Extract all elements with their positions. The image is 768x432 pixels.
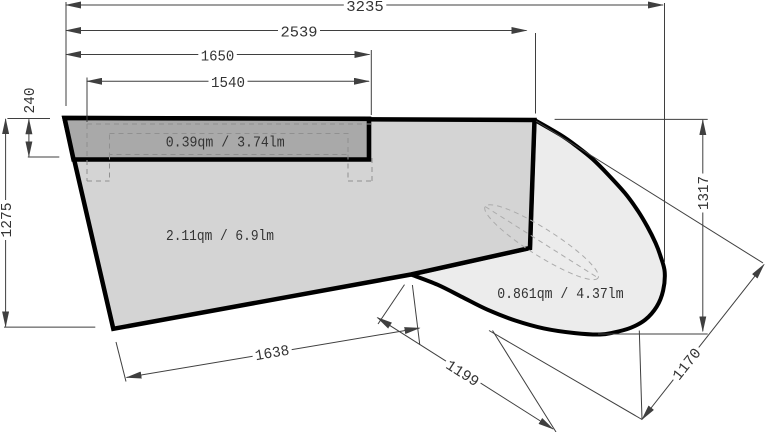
svg-text:0.39qm / 3.74lm: 0.39qm / 3.74lm [166, 134, 285, 151]
svg-text:1317: 1317 [696, 176, 713, 210]
svg-text:240: 240 [22, 88, 39, 114]
svg-text:1650: 1650 [201, 48, 235, 65]
svg-text:1540: 1540 [211, 75, 245, 92]
svg-text:0.861qm / 4.37lm: 0.861qm / 4.37lm [497, 286, 623, 303]
svg-text:2539: 2539 [281, 24, 318, 41]
svg-text:1275: 1275 [0, 203, 16, 238]
svg-text:3235: 3235 [346, 0, 384, 16]
svg-text:2.11qm / 6.9lm: 2.11qm / 6.9lm [166, 228, 274, 245]
